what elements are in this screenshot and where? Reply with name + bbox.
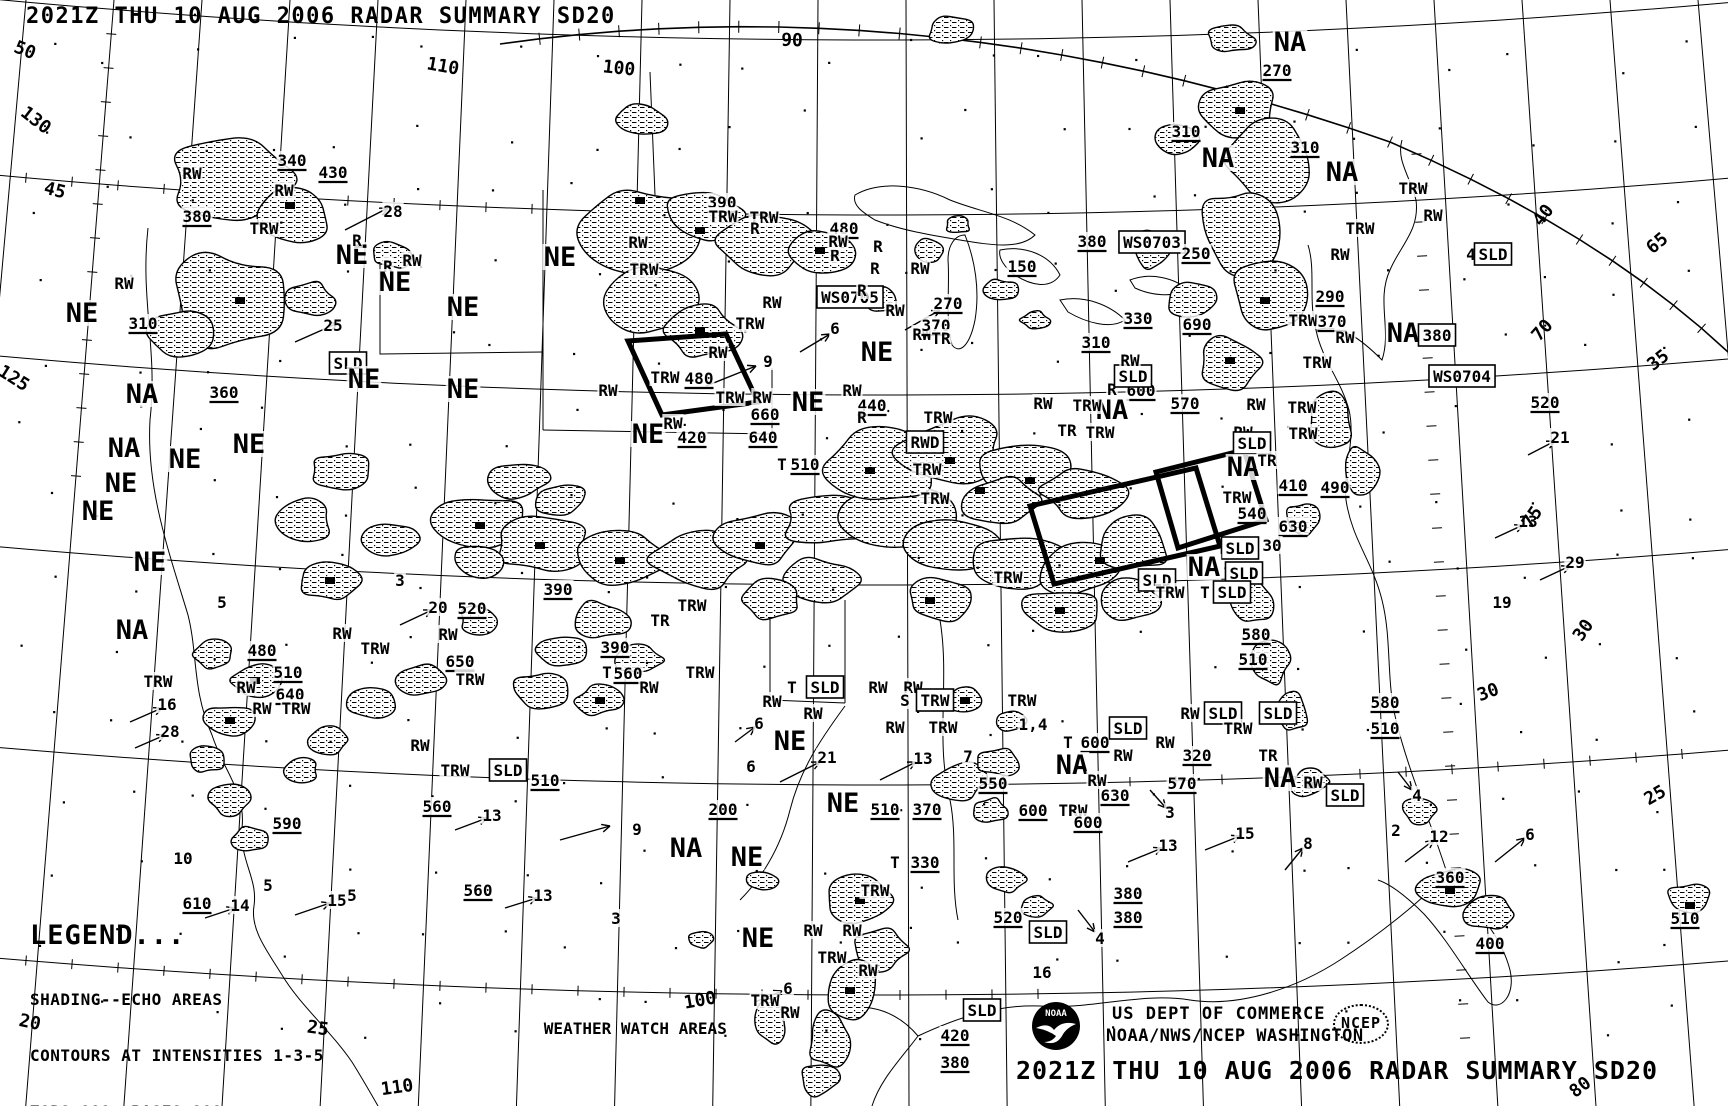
map-label: 13 [482,806,501,825]
map-label: 6 [754,714,764,733]
map-label: 380 [1078,232,1107,251]
map-label: RW [1423,206,1443,225]
map-label: 480 [248,641,277,660]
map-label: RW [885,718,905,737]
map-label: 560 [423,797,452,816]
legend-heading: LEGEND... [30,920,354,951]
map-label: NA [1227,452,1260,483]
map-label: 630 [1101,786,1130,805]
map-label: RW [868,678,888,697]
graticule-label: 65 [1642,228,1672,258]
map-label: NA [126,379,159,410]
map-label: SLD [1114,719,1143,738]
map-label: 12 [1429,827,1448,846]
map-label: TRW [361,639,390,658]
map-label: RW [803,704,823,723]
map-label: 310 [129,314,158,333]
map-label: 10 [173,849,192,868]
map-label: 410 [1279,476,1308,495]
map-label: NE [861,337,894,368]
map-label: 520 [994,908,1023,927]
map-label: NE [774,726,807,757]
map-label: R [857,408,867,427]
map-label: RW [332,624,352,643]
noaa-seagull-logo-icon: NOAA [1032,1002,1080,1050]
map-label: TR [1257,451,1277,470]
map-label: S [900,691,910,710]
map-label: NA [670,833,703,864]
map-label: TRW [736,314,765,333]
map-label: 360 [1436,868,1465,887]
map-label: 4 [1412,786,1422,805]
map-label: TRW [678,596,707,615]
map-label: TRW [1288,398,1317,417]
map-label: 380 [1423,326,1452,345]
map-label: TRW [1224,719,1253,738]
map-label: NA [1056,750,1089,781]
map-label: TRW [818,948,847,967]
legend-line: SHADING--ECHO AREAS [30,991,354,1009]
map-label: NE [348,364,381,395]
graticule-label: 100 [602,56,637,80]
map-label: RW [762,692,782,711]
map-label: TRW [921,489,950,508]
map-label: NA [1274,27,1307,58]
map-label: 25 [323,316,342,335]
map-label: R [750,219,760,238]
map-label: TRW [1073,396,1102,415]
graticule-label: 40 [1528,200,1558,230]
map-label: 380 [941,1053,970,1072]
chart-title-top: 2021Z THU 10 AUG 2006 RADAR SUMMARY SD20 [26,4,616,29]
map-label: NA [116,615,149,646]
map-label: 420 [941,1026,970,1045]
attribution-line-2: NOAA/NWS/NCEP WASHINGTON [1106,1026,1364,1046]
graticule-label: 30 [1474,679,1502,706]
map-label: 250 [1182,244,1211,263]
map-label: 590 [273,814,302,833]
map-label: NA [1188,552,1221,583]
attribution-line-1: US DEPT OF COMMERCE [1112,1004,1325,1024]
map-label: T [602,663,612,682]
graticule-label: 45 [42,178,68,204]
map-label: NA [108,433,141,464]
map-label: SLD [1230,564,1259,583]
map-label: SLD [811,678,840,697]
map-label: 400 [1476,934,1505,953]
map-label: 28 [160,722,179,741]
map-label: TRW [250,219,279,238]
map-label: 6 [830,319,840,338]
map-label: 510 [274,663,303,682]
map-label: 560 [614,664,643,683]
map-label: RW [236,678,256,697]
map-label: 570 [1171,394,1200,413]
map-label: WS0703 [1123,233,1181,252]
map-label: RW [274,181,294,200]
map-label: TRW [716,388,745,407]
map-label: 310 [1082,333,1111,352]
map-label: NE [827,788,860,819]
map-label: 21 [817,748,836,767]
map-label: 380 [1114,884,1143,903]
map-label: RW [858,961,878,980]
map-label: 28 [383,202,402,221]
map-label: R [352,231,362,250]
map-label: NE [544,242,577,273]
map-label: TRW [1156,583,1185,602]
map-label: 510 [871,800,900,819]
map-label: NE [134,547,167,578]
map-label: 20 [428,598,447,617]
map-label: TRW [994,568,1023,587]
map-label: R [873,237,883,256]
map-label: 430 [319,163,348,182]
map-label: SLD [1226,539,1255,558]
chart-title-bottom: 2021Z THU 10 AUG 2006 RADAR SUMMARY SD20 [1016,1056,1658,1085]
map-label: NA [1387,318,1420,349]
map-label: SLD [1218,583,1247,602]
map-label: RW [402,251,422,270]
map-label: 560 [464,881,493,900]
map-label: NE [447,292,480,323]
map-label: 21 [1550,428,1569,447]
map-label: NA [1202,143,1235,174]
map-label: TRW [441,761,470,780]
graticule-label: 110 [425,53,461,79]
map-label: 150 [1008,257,1037,276]
map-label: RW [252,699,272,718]
map-label: RW [114,274,134,293]
map-label: RW [828,232,848,251]
map-label: TRW [1399,179,1428,198]
legend-block: LEGEND... SHADING--ECHO AREAS CONTOURS A… [30,882,354,1106]
map-label: RW [182,164,202,183]
map-label: 30 [1262,536,1281,555]
map-label: TRW [861,881,890,900]
map-label: TRW [144,672,173,691]
map-label: RW [1246,395,1266,414]
map-label: 7 [963,747,973,766]
map-label: 8 [1303,834,1313,853]
map-label: NA [1326,157,1359,188]
map-label: 3 [1165,803,1175,822]
map-label: WS0704 [1433,367,1491,386]
map-label: 29 [1565,553,1584,572]
map-label: T [787,678,797,697]
map-label: RWD [911,433,940,452]
map-label: NE [447,374,480,405]
weather-watch-table: WEATHER WATCH AREAS AREASTARTEND WS07031… [486,966,819,1106]
map-label: 510 [1671,909,1700,928]
map-label: NE [379,267,412,298]
map-label: 390 [601,638,630,657]
map-label: SLD [494,761,523,780]
map-label: TRW [929,718,958,737]
map-label: RW [803,921,823,940]
map-label: 690 [1183,315,1212,334]
map-label: RW [1335,328,1355,347]
graticule-label: 90 [781,30,803,52]
map-label: 510 [1239,650,1268,669]
map-label: RW [910,259,930,278]
graticule-label: 25 [1641,781,1670,810]
map-label: TRW [913,460,942,479]
map-label: 4 [1095,929,1105,948]
map-label: TRW [630,260,659,279]
map-label: T [890,853,900,872]
map-label: TRW [921,691,950,710]
map-label: R [857,281,867,300]
map-label: 640 [749,428,778,447]
map-label: RW [1155,733,1175,752]
map-label: RW [885,301,905,320]
map-label: 19 [1492,593,1511,612]
map-label: 520 [458,599,487,618]
map-label: TRW [1289,424,1318,443]
map-label: 510 [1371,719,1400,738]
map-label: RW [639,678,659,697]
map-label: RW [842,921,862,940]
map-label: TRW [1086,423,1115,442]
map-label: RW [762,293,782,312]
map-label: TRW [1289,311,1318,330]
graticule-label: 125 [0,361,33,396]
map-label: 310 [1291,138,1320,157]
map-label: 16 [157,695,176,714]
map-label: TR [650,611,670,630]
graticule-label: 35 [1643,345,1673,375]
map-label: 520 [1531,393,1560,412]
map-label: TRW [651,368,680,387]
map-label: 5 [217,593,227,612]
map-label: NE [82,496,115,527]
map-label: 420 [678,428,707,447]
map-label: TRW [709,207,738,226]
map-label: TRW [1303,353,1332,372]
map-label: 650 [446,652,475,671]
map-label: 9 [763,352,773,371]
map-label: RW [628,233,648,252]
map-label: 2 [1391,821,1401,840]
map-label: 1,4 [1019,715,1048,734]
map-label: 360 [210,383,239,402]
watch-table-title: WEATHER WATCH AREAS [486,1002,819,1056]
map-label: 510 [531,771,560,790]
map-label: TRW [1346,219,1375,238]
map-label: 330 [911,853,940,872]
map-label: 340 [278,151,307,170]
graticule-label: 70 [1527,315,1557,345]
map-label: TRW [686,663,715,682]
map-label: WS0705 [821,288,879,307]
watch-table-header: AREASTARTEND [486,1092,819,1106]
map-label: SLD [1034,923,1063,942]
map-label: NE [169,444,202,475]
map-label: 580 [1371,693,1400,712]
map-label: 15 [1235,824,1254,843]
map-label: 330 [1124,309,1153,328]
map-label: NE [792,387,825,418]
graticule-label: 110 [380,1075,415,1100]
map-label: 580 [1242,625,1271,644]
map-label: TRW [456,670,485,689]
map-label: 480 [685,369,714,388]
map-label: 600 [1019,801,1048,820]
map-label: RW [708,343,728,362]
map-label: T [1200,583,1210,602]
map-label: NE [632,419,665,450]
map-label: TR [1057,421,1077,440]
map-label: 380 [1114,908,1143,927]
map-label: 290 [1316,287,1345,306]
map-label: RW [598,381,618,400]
map-label: RW [1033,394,1053,413]
map-label: TRW [282,699,311,718]
map-label: RW [438,625,458,644]
map-label: 660 [751,405,780,424]
map-label: 270 [934,294,963,313]
map-label: NA [1264,763,1297,794]
map-label: RW [752,388,772,407]
graticule-label: 50 [11,37,39,65]
map-label: RW [1113,746,1133,765]
map-label: 320 [1183,746,1212,765]
legend-line: CONTOURS AT INTENSITIES 1-3-5 [30,1047,354,1065]
map-label: NE [731,842,764,873]
map-label: 490 [1321,478,1350,497]
map-label: 3 [395,571,405,590]
map-label: 380 [183,207,212,226]
map-label: 16 [1032,963,1051,982]
radar-summary-chart: RW340430RW380TRW28RNENERW31025SLDNA360NE… [0,0,1728,1106]
map-label: 550 [979,774,1008,793]
map-label: NE [66,298,99,329]
map-label: 9 [632,820,642,839]
map-label: RW [1120,351,1140,370]
map-label: RW [1303,773,1323,792]
map-label: 270 [1263,61,1292,80]
map-label: 6 [1525,825,1535,844]
map-label: 540 [1238,504,1267,523]
map-label: 13 [913,749,932,768]
map-label: 510 [791,455,820,474]
map-label: 570 [1168,774,1197,793]
graticule-label: 30 [1569,615,1599,645]
map-label: SLD [1264,704,1293,723]
map-label: 6 [746,757,756,776]
map-label: RW [410,736,430,755]
map-label: 600 [1074,813,1103,832]
map-label: 3 [611,909,621,928]
map-label: TRW [924,408,953,427]
map-label: TR [931,329,951,348]
map-label: 310 [1172,122,1201,141]
map-label: R [870,259,880,278]
map-label: T [777,455,787,474]
map-label: NE [105,468,138,499]
map-label: RW [1330,245,1350,264]
map-label: 13 [533,886,552,905]
map-label: TRW [1008,691,1037,710]
map-label: 200 [709,800,738,819]
map-label: NE [742,923,775,954]
map-label: NE [233,429,266,460]
map-label: SLD [1479,245,1508,264]
map-label: 390 [544,580,573,599]
map-label: 13 [1158,836,1177,855]
map-label: RW [1180,704,1200,723]
map-label: 630 [1279,517,1308,536]
map-label: SLD [968,1001,997,1020]
map-label: SLD [1331,786,1360,805]
map-label: 370 [913,800,942,819]
ncep-oval-logo-icon: NCEP [1333,1004,1389,1044]
graticule-label: 130 [16,102,55,139]
